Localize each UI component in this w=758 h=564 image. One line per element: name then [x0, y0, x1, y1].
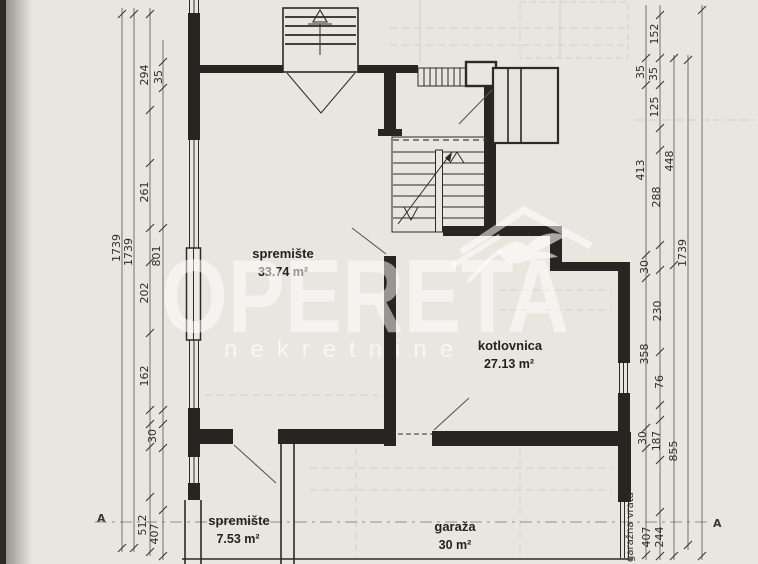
- dim-label: 261: [138, 182, 151, 203]
- dim-label: 152: [648, 24, 661, 45]
- section-letter-right: A: [713, 517, 722, 530]
- room-area-garage: 30 m²: [439, 538, 472, 552]
- dim-label: 294: [138, 65, 151, 86]
- room-area-storage-small: 7.53 m²: [216, 532, 259, 546]
- dim-label: 244: [653, 527, 666, 548]
- dim-label: 125: [648, 97, 661, 118]
- dim-label: 407: [640, 527, 653, 548]
- dim-label: 202: [138, 283, 151, 304]
- room-label-storage-small: spremište: [208, 513, 269, 528]
- dim-label: 407: [148, 524, 161, 545]
- section-letter-left: A: [97, 512, 106, 525]
- room-area-boiler: 27.13 m²: [484, 357, 534, 371]
- dim-label: 187: [651, 431, 663, 451]
- dim-label: 162: [138, 366, 151, 387]
- dim-label: 35: [647, 67, 660, 81]
- dim-label: 30: [637, 431, 649, 444]
- dim-label: 76: [653, 375, 666, 389]
- watermark-subtitle: nekretnine: [224, 336, 466, 363]
- dim-label: 288: [650, 187, 663, 208]
- dim-label: 30: [146, 429, 159, 443]
- dim-label: 448: [663, 151, 676, 172]
- dim-label: 413: [634, 160, 647, 181]
- dim-label: 1739: [676, 239, 689, 267]
- dim-label: 230: [651, 301, 664, 322]
- dim-label: 35: [152, 70, 165, 84]
- dim-label: 35: [634, 65, 647, 79]
- dim-label: 30: [638, 260, 651, 274]
- garage-door-label: garažna vrata: [624, 492, 636, 562]
- floor-plan-canvas: 1739 1739 294 35 261 801 202 162 30 512 …: [0, 0, 758, 564]
- dim-label: 358: [638, 344, 651, 365]
- scanned-floorplan-page: 1739 1739 294 35 261 801 202 162 30 512 …: [0, 0, 758, 564]
- room-label-garage: garaža: [434, 519, 476, 534]
- dim-label: 855: [667, 441, 680, 462]
- dim-label: 1739: [122, 238, 135, 266]
